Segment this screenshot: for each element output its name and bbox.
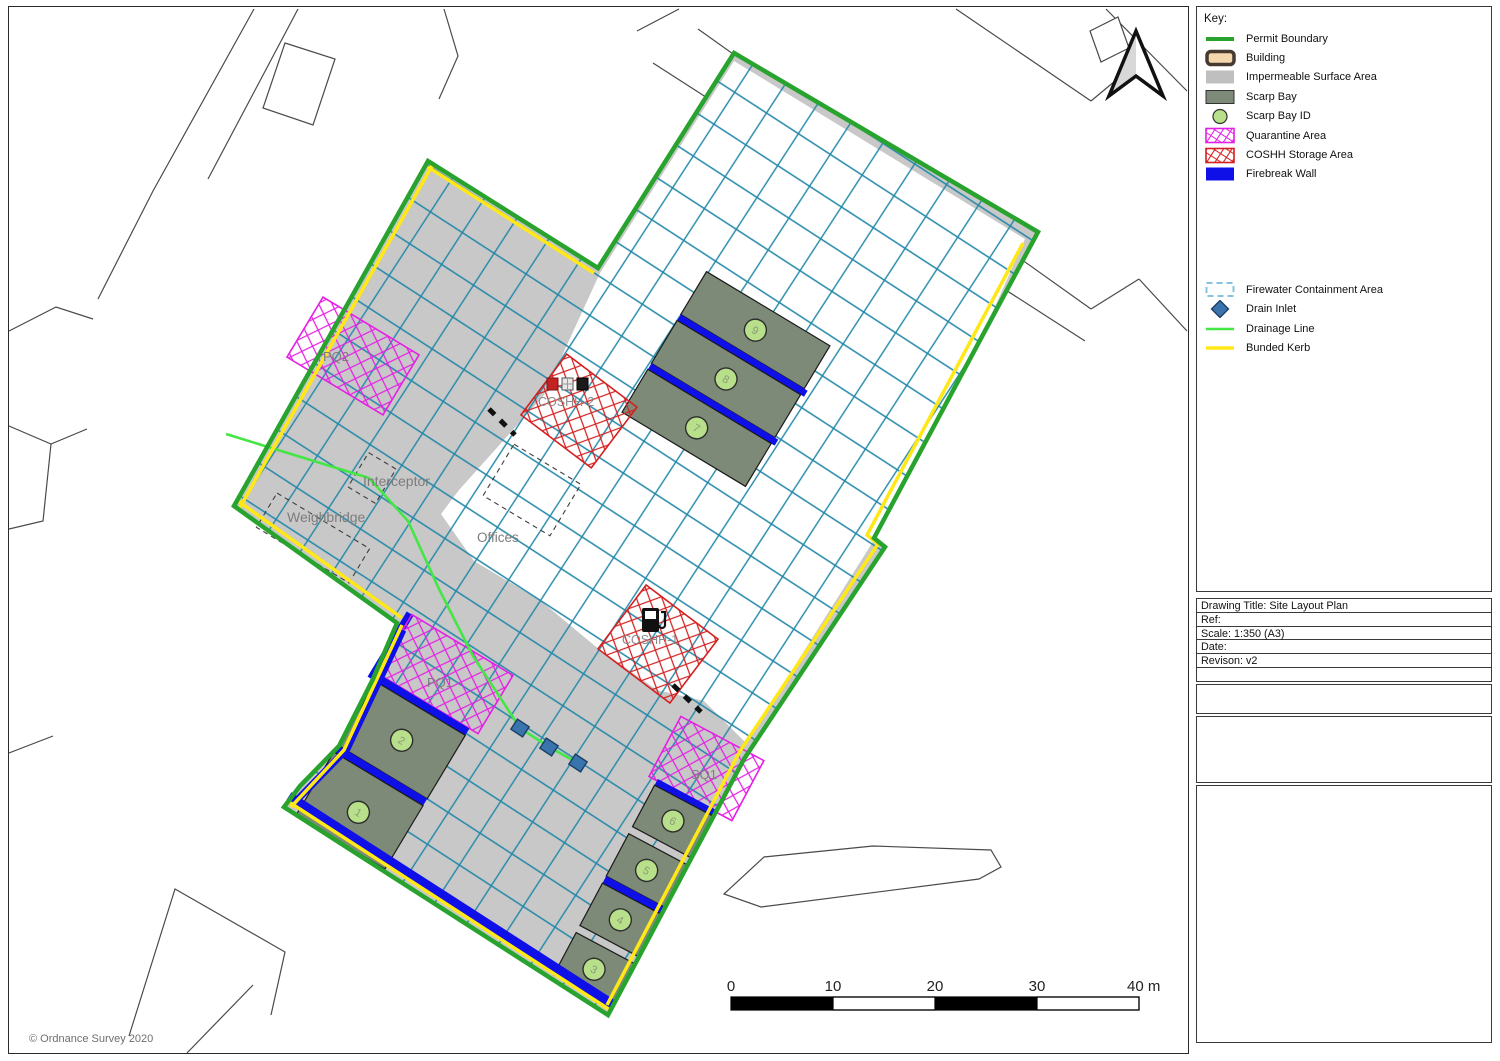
legend-item-scarp-bay: Scarp Bay xyxy=(1204,87,1485,106)
pq1-label: PQ1 xyxy=(427,675,453,690)
quarantine-swatch xyxy=(1204,127,1238,144)
drawing-title-row: Drawing Title: Site Layout Plan xyxy=(1196,598,1492,613)
scale-row: Scale: 1:350 (A3) xyxy=(1196,626,1492,641)
legend-item-coshh-storage: COSHH Storage Area xyxy=(1204,145,1485,164)
scale-tick-0: 0 xyxy=(727,978,735,995)
map-canvas: 9 8 7 2 1 6 xyxy=(8,6,1189,1054)
legend-label: Quarantine Area xyxy=(1246,130,1326,142)
legend-group-2: Firewater Containment Area Drain Inlet D… xyxy=(1204,280,1485,358)
legend-label: Scarp Bay ID xyxy=(1246,110,1311,122)
legend-label: Impermeable Surface Area xyxy=(1246,71,1377,83)
empty-box xyxy=(1196,716,1492,783)
os-copyright: © Ordnance Survey 2020 xyxy=(29,1033,153,1045)
site-layout-plan-page: 9 8 7 2 1 6 xyxy=(0,0,1500,1061)
offices-label: Offices xyxy=(477,530,519,545)
firewater-swatch xyxy=(1204,281,1238,298)
ref-row: Ref: xyxy=(1196,612,1492,627)
legend-label: Drainage Line xyxy=(1246,323,1315,335)
empty-row xyxy=(1196,667,1492,682)
interceptor-label: Interceptor xyxy=(363,473,430,489)
legend-label: Firebreak Wall xyxy=(1246,168,1317,180)
legend-label: Scarp Bay xyxy=(1246,91,1297,103)
legend-item-drainage-line: Drainage Line xyxy=(1204,319,1485,338)
scarp-bay-id-swatch xyxy=(1204,108,1238,125)
legend-label: Building xyxy=(1246,52,1285,64)
legend-label: Bunded Kerb xyxy=(1246,342,1310,354)
hazard-icon xyxy=(577,378,588,390)
date-row: Date: xyxy=(1196,639,1492,654)
legend-item-firebreak-wall: Firebreak Wall xyxy=(1204,165,1485,184)
scale-tick-30: 30 xyxy=(1029,978,1046,995)
legend-label: COSHH Storage Area xyxy=(1246,149,1353,161)
legend-title: Key: xyxy=(1204,13,1485,25)
scale-bar: 0 10 20 30 40 m xyxy=(727,978,1161,1010)
legend-item-firewater-containment: Firewater Containment Area xyxy=(1204,280,1485,299)
scarp-bay-swatch xyxy=(1204,89,1238,105)
revision-row: Revison: v2 xyxy=(1196,653,1492,668)
site-plan-svg: 9 8 7 2 1 6 xyxy=(9,7,1188,1053)
legend-item-impermeable-surface: Impermeable Surface Area xyxy=(1204,68,1485,87)
drainage-swatch xyxy=(1204,321,1238,337)
legend-label: Drain Inlet xyxy=(1246,303,1296,315)
bunded-kerb-swatch xyxy=(1204,340,1238,356)
notes-box xyxy=(1196,785,1492,1043)
legend-item-bunded-kerb: Bunded Kerb xyxy=(1204,338,1485,357)
permit-boundary-swatch xyxy=(1204,31,1238,47)
legend-item-scarp-bay-id: Scarp Bay ID xyxy=(1204,107,1485,126)
impermeable-swatch xyxy=(1204,69,1238,85)
legend-item-building: Building xyxy=(1204,48,1485,67)
coshh2-hazard-icons xyxy=(547,378,588,390)
legend: Key: Permit Boundary Building Impermeabl… xyxy=(1196,6,1492,592)
empty-box xyxy=(1196,684,1492,714)
legend-item-drain-inlet: Drain Inlet xyxy=(1204,300,1485,319)
coshh-swatch xyxy=(1204,147,1238,164)
coshh2-label: COSHH-2 xyxy=(538,395,594,409)
coshh1-label: COSHH-1 xyxy=(622,633,678,647)
scale-tick-40: 40 m xyxy=(1127,978,1160,995)
pq2-label: PQ2 xyxy=(323,349,349,364)
title-block: Drawing Title: Site Layout Plan Ref: Sca… xyxy=(1196,598,1492,682)
legend-item-permit-boundary: Permit Boundary xyxy=(1204,29,1485,48)
building-swatch xyxy=(1204,49,1238,67)
legend-label: Firewater Containment Area xyxy=(1246,284,1383,296)
drain-inlet-swatch xyxy=(1204,300,1238,318)
firebreak-swatch xyxy=(1204,166,1238,182)
sq1-label: SQ1 xyxy=(691,767,717,782)
scale-tick-20: 20 xyxy=(927,978,944,995)
weighbridge-label: Weighbridge xyxy=(287,509,366,525)
info-panel: Key: Permit Boundary Building Impermeabl… xyxy=(1196,6,1492,1054)
legend-item-quarantine-area: Quarantine Area xyxy=(1204,126,1485,145)
legend-label: Permit Boundary xyxy=(1246,33,1328,45)
hazard-icon xyxy=(547,378,558,390)
scale-tick-10: 10 xyxy=(825,978,842,995)
